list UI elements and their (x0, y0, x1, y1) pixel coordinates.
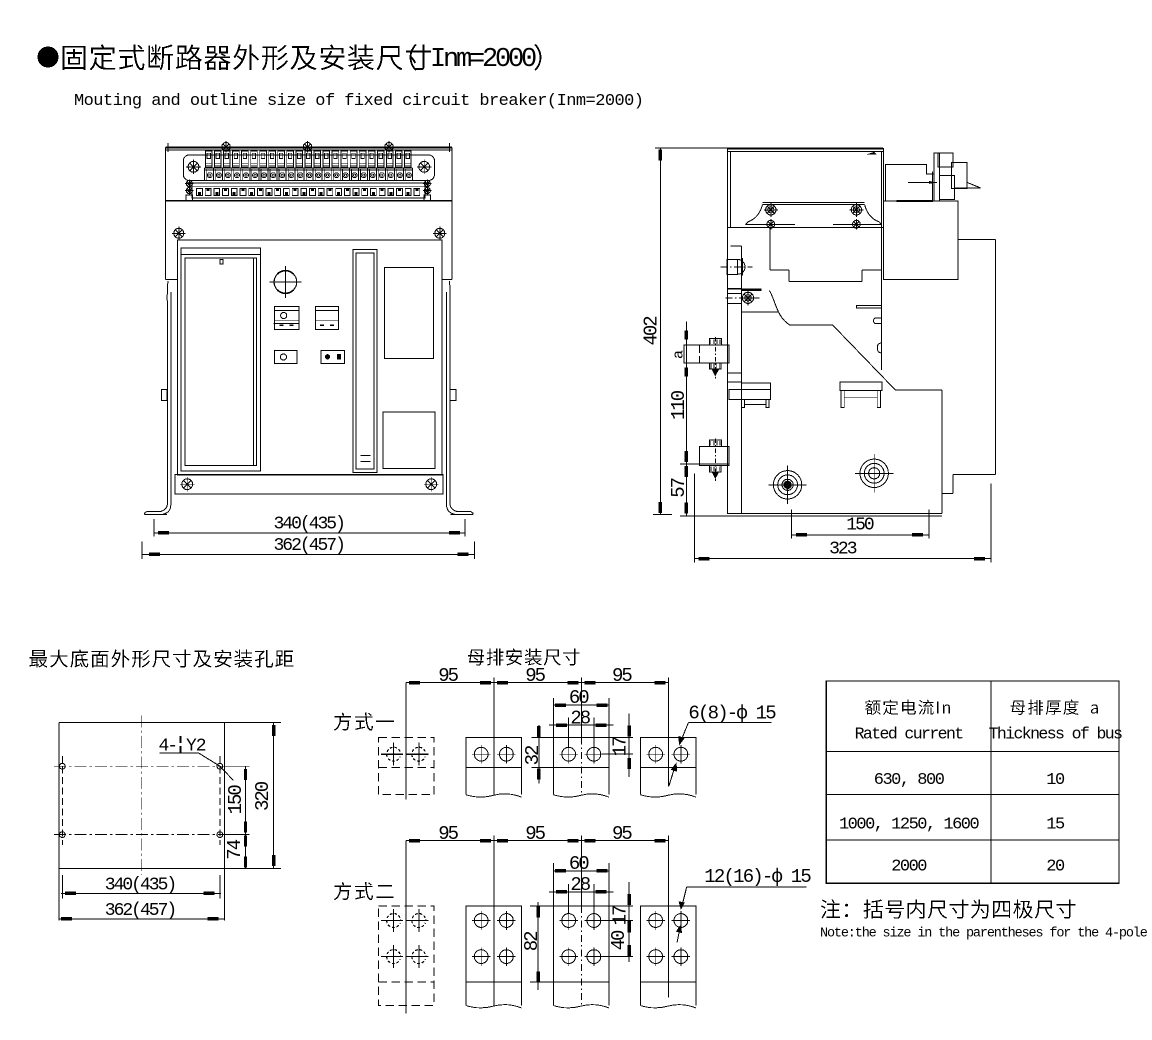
svg-text:10: 10 (1046, 771, 1065, 790)
svg-text:82: 82 (521, 931, 543, 951)
svg-text:Thickness of bus: Thickness of bus (989, 725, 1123, 744)
svg-text:4-: 4- (159, 737, 177, 757)
svg-text:340(435): 340(435) (273, 515, 343, 535)
svg-text:20: 20 (1046, 858, 1065, 877)
svg-text:32: 32 (522, 745, 544, 765)
svg-text:Inm=2000: Inm=2000 (430, 45, 536, 75)
svg-text:150: 150 (846, 516, 874, 536)
svg-text:2000: 2000 (891, 858, 927, 877)
svg-text:15: 15 (1046, 816, 1065, 835)
svg-text:Note:the size in the parenthes: Note:the size in the parentheses for the… (820, 927, 1148, 942)
svg-text:Rated current: Rated current (855, 725, 964, 744)
svg-text:28: 28 (570, 874, 590, 896)
svg-text:1000, 1250, 1600: 1000, 1250, 1600 (839, 816, 980, 835)
svg-text:95: 95 (438, 665, 458, 687)
svg-text:362(457): 362(457) (105, 901, 175, 921)
svg-text:40: 40 (608, 930, 630, 950)
svg-text:95: 95 (525, 823, 545, 845)
svg-text:320: 320 (252, 781, 274, 811)
svg-text:60: 60 (569, 687, 589, 709)
svg-text:95: 95 (438, 823, 458, 845)
svg-text:Mouting and outline size of fi: Mouting and outline size of fixed circui… (74, 92, 643, 111)
svg-text:95: 95 (612, 665, 632, 687)
svg-text:402: 402 (641, 316, 663, 346)
svg-text:362(457): 362(457) (273, 536, 343, 556)
svg-text:28: 28 (570, 707, 590, 729)
svg-text:95: 95 (525, 665, 545, 687)
svg-text:17: 17 (610, 737, 632, 756)
svg-text:Y2: Y2 (186, 737, 206, 757)
svg-text:150: 150 (225, 785, 247, 815)
svg-text:57: 57 (668, 478, 690, 497)
svg-text:110: 110 (668, 390, 690, 420)
svg-text:323: 323 (829, 540, 857, 560)
svg-text:a: a (670, 350, 687, 359)
svg-text:60: 60 (569, 853, 589, 875)
svg-text:630, 800: 630, 800 (874, 771, 945, 790)
svg-text:95: 95 (612, 823, 632, 845)
svg-text:74: 74 (224, 839, 246, 859)
svg-text:6(8)-ф 15: 6(8)-ф 15 (688, 702, 776, 724)
svg-text:340(435): 340(435) (105, 875, 175, 895)
svg-text:12(16)-ф 15: 12(16)-ф 15 (704, 866, 811, 888)
